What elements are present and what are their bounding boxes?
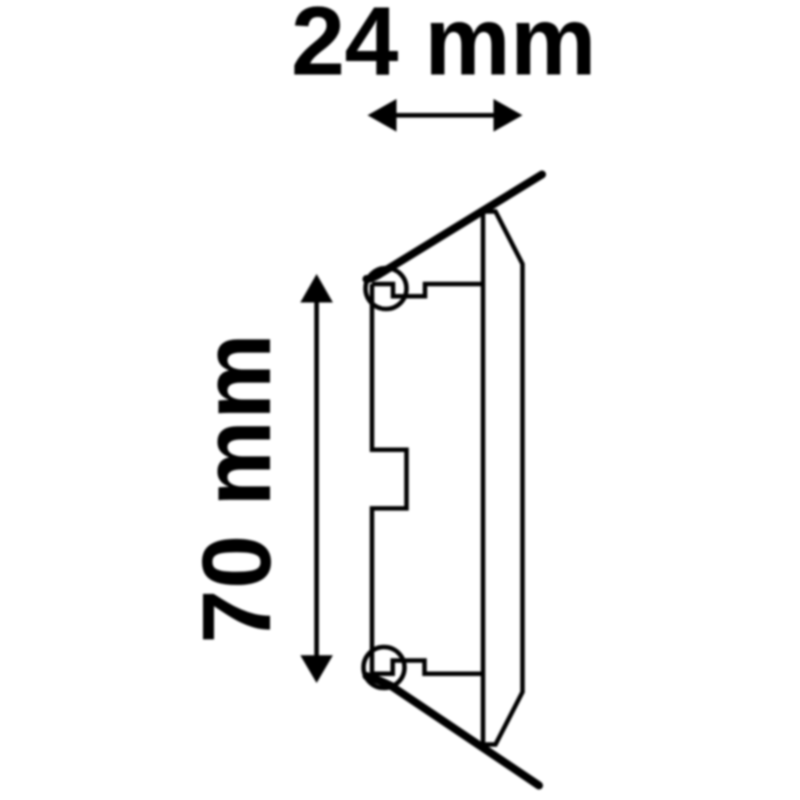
svg-text:24 mm: 24 mm [291,0,596,96]
svg-text:70 mm: 70 mm [182,333,291,644]
